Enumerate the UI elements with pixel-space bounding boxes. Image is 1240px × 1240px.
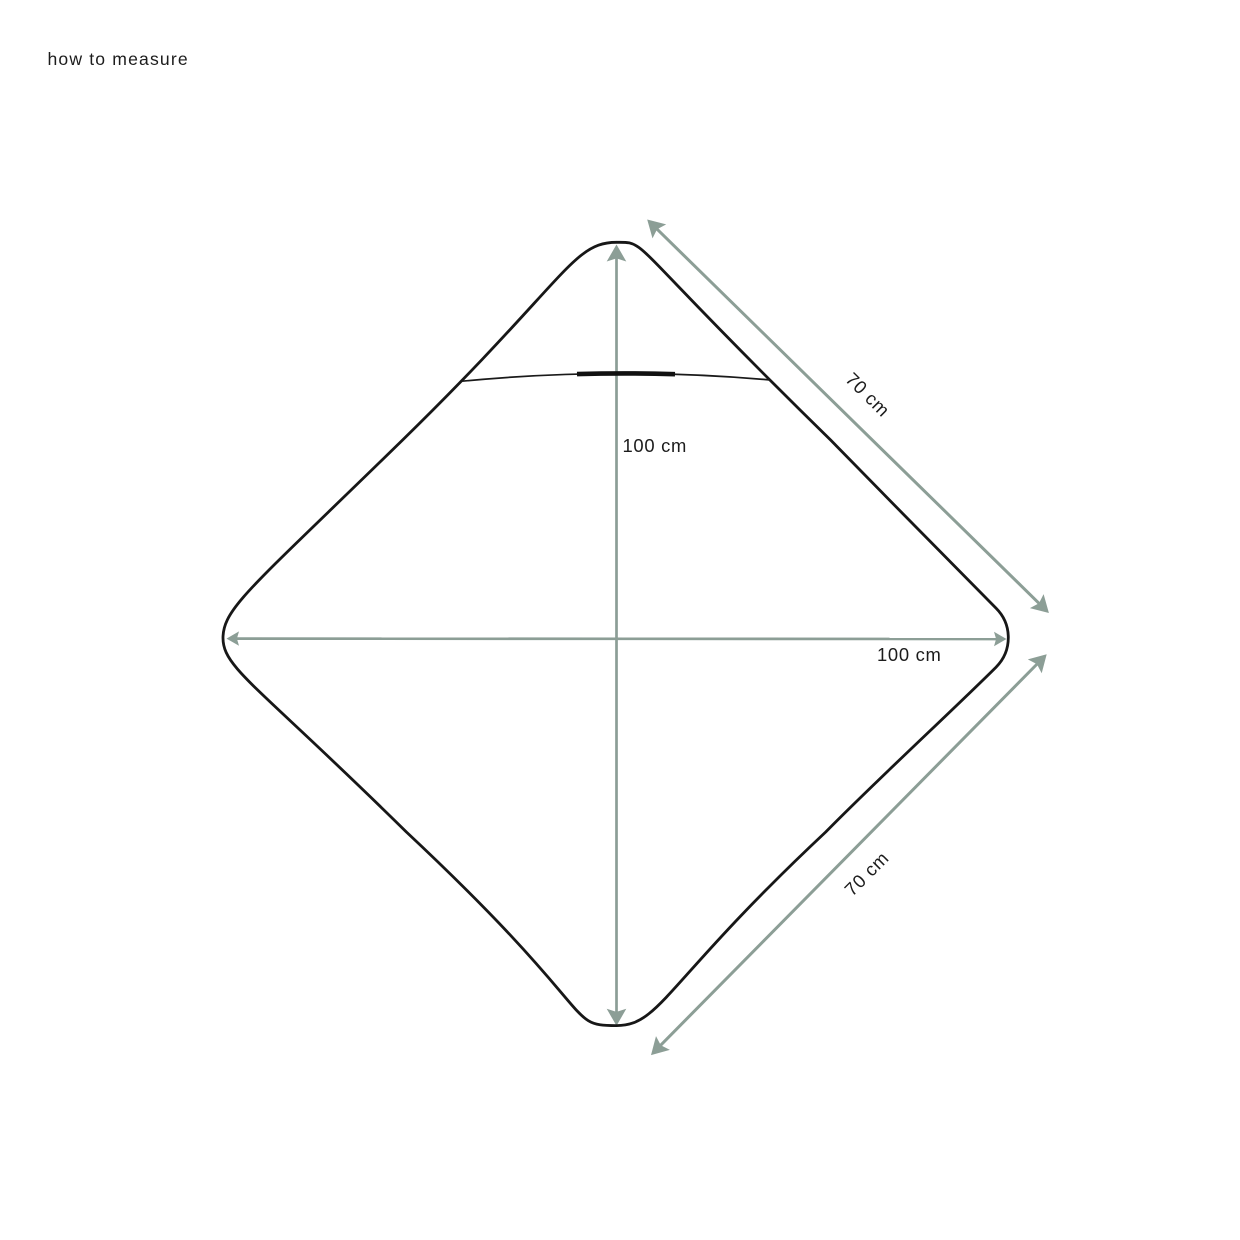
svg-text:100 cm: 100 cm — [877, 644, 942, 665]
svg-text:100 cm: 100 cm — [623, 435, 688, 456]
svg-text:how to measure: how to measure — [48, 49, 189, 69]
